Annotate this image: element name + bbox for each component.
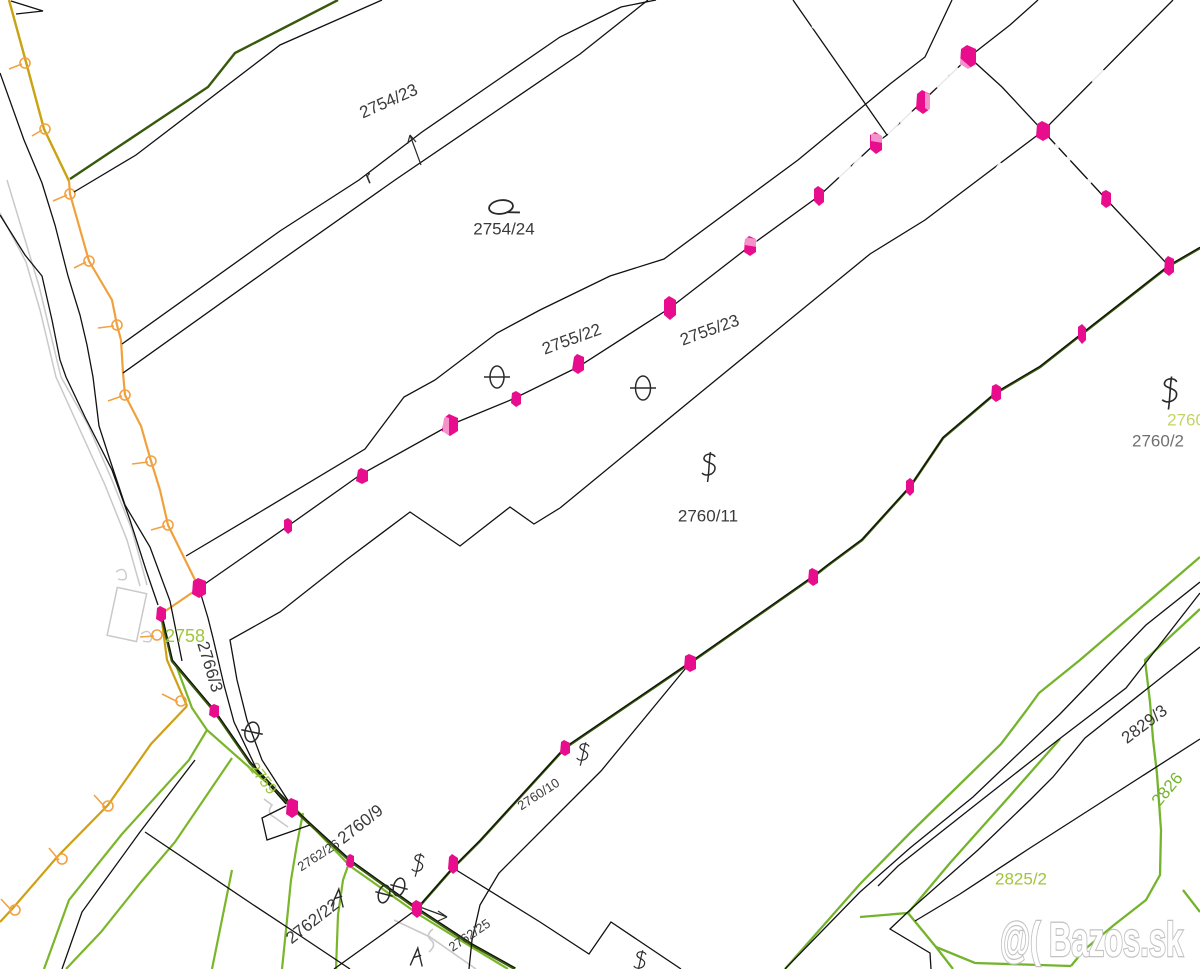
svg-text:2760/2: 2760/2 [1132,431,1184,450]
svg-text:2825/2: 2825/2 [995,869,1047,888]
svg-text:2760/11: 2760/11 [678,506,738,525]
svg-text:2760: 2760 [1167,410,1200,429]
svg-text:2754/24: 2754/24 [473,219,534,238]
svg-text:@( Bazos.sk: @( Bazos.sk [1000,912,1184,967]
